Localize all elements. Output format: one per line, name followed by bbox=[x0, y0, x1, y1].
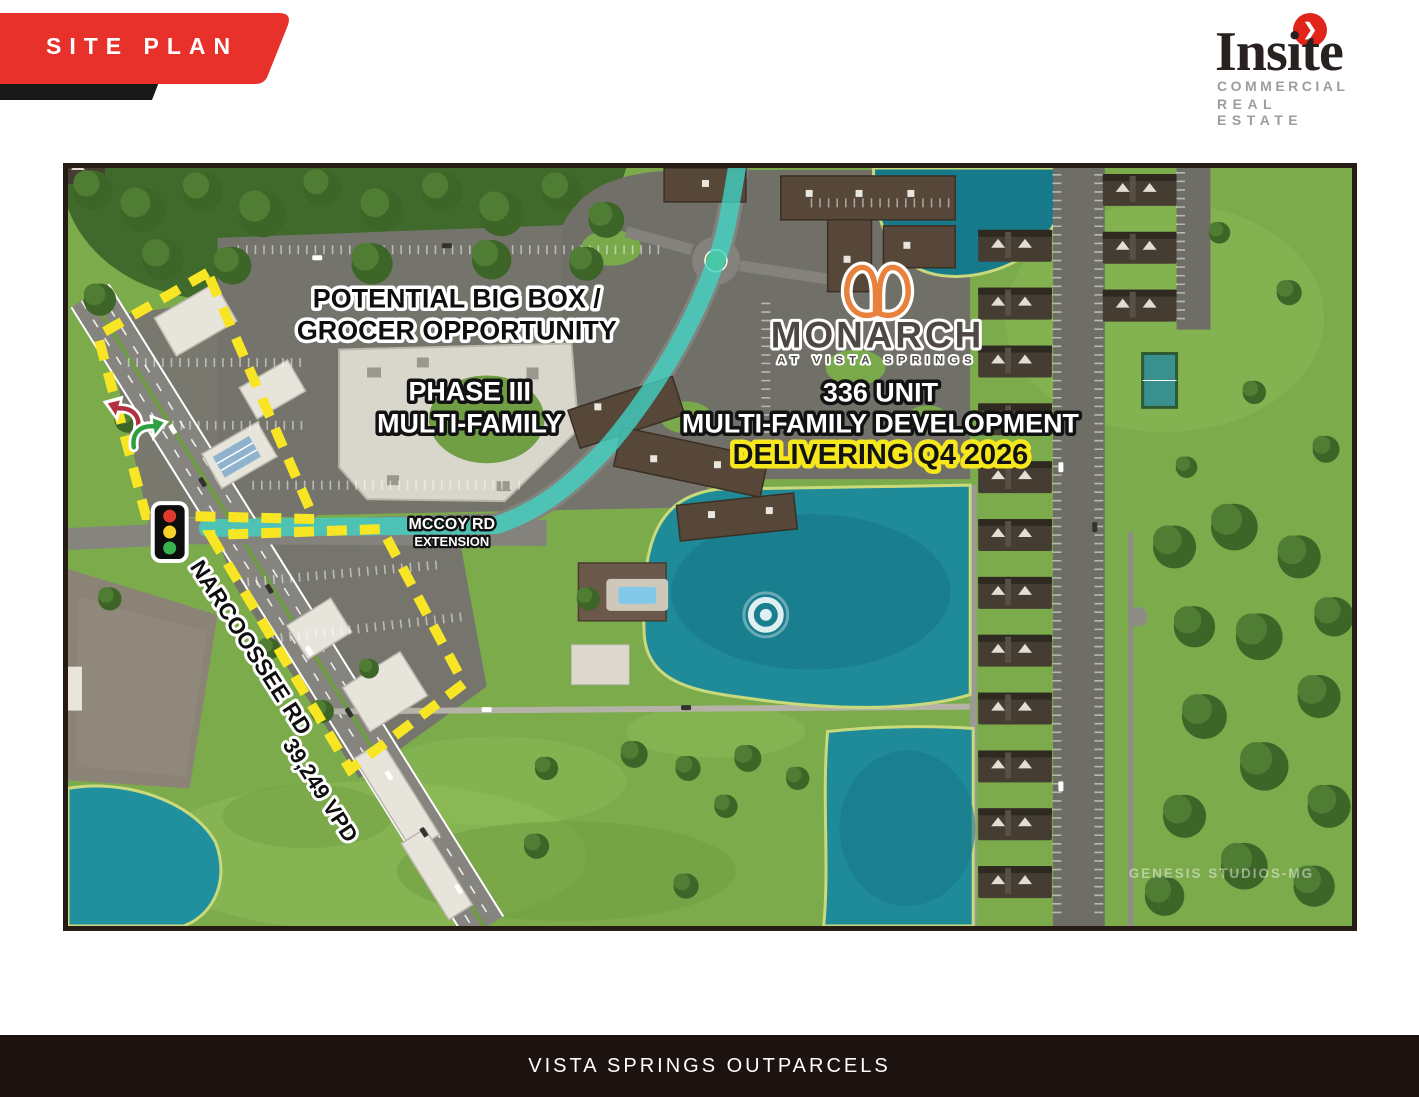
mccoy-road-west bbox=[68, 535, 158, 539]
mccoy-label-line2: EXTENSION bbox=[414, 534, 489, 549]
banner-title: SITE PLAN bbox=[46, 33, 238, 60]
amenity-building bbox=[571, 645, 629, 685]
development-label-line1: 336 UNIT bbox=[823, 377, 939, 407]
monarch-logo-tagline: AT VISTA SPRINGS bbox=[777, 354, 977, 366]
big-box-label-line1: POTENTIAL BIG BOX / bbox=[313, 284, 601, 314]
monarch-logo-name: MONARCH bbox=[771, 315, 984, 356]
insite-logo-name: Insite bbox=[1215, 20, 1343, 84]
site-plan-flyer: SITE PLAN ❯ Insite COMMERCIAL REAL ESTAT… bbox=[0, 0, 1419, 1097]
lake-fountain bbox=[744, 593, 788, 637]
development-label-line2: MULTI-FAMILY DEVELOPMENT bbox=[682, 408, 1080, 438]
footer-bar: VISTA SPRINGS OUTPARCELS bbox=[0, 1035, 1419, 1097]
site-plan-map: POTENTIAL BIG BOX / GROCER OPPORTUNITY P… bbox=[63, 163, 1357, 931]
site-plan-banner: SITE PLAN bbox=[0, 0, 320, 110]
insite-logo-subtitle-2: REAL ESTATE bbox=[1217, 96, 1365, 128]
big-box-label-line2: GROCER OPPORTUNITY bbox=[297, 316, 617, 346]
watermark: GENESIS STUDIOS-MG bbox=[1129, 866, 1314, 881]
pool bbox=[618, 587, 656, 604]
mccoy-label-line1: MCCOY RD bbox=[409, 516, 495, 533]
traffic-light-icon bbox=[153, 503, 187, 561]
insite-logo: ❯ Insite COMMERCIAL REAL ESTATE bbox=[1205, 6, 1365, 116]
insite-logo-subtitle-1: COMMERCIAL bbox=[1217, 78, 1348, 94]
phase-label-line1: PHASE III bbox=[408, 376, 531, 406]
footer-title: VISTA SPRINGS OUTPARCELS bbox=[528, 1055, 890, 1078]
phase-label-line2: MULTI-FAMILY bbox=[377, 408, 562, 438]
delivering-label: DELIVERING Q4 2026 bbox=[733, 439, 1029, 471]
